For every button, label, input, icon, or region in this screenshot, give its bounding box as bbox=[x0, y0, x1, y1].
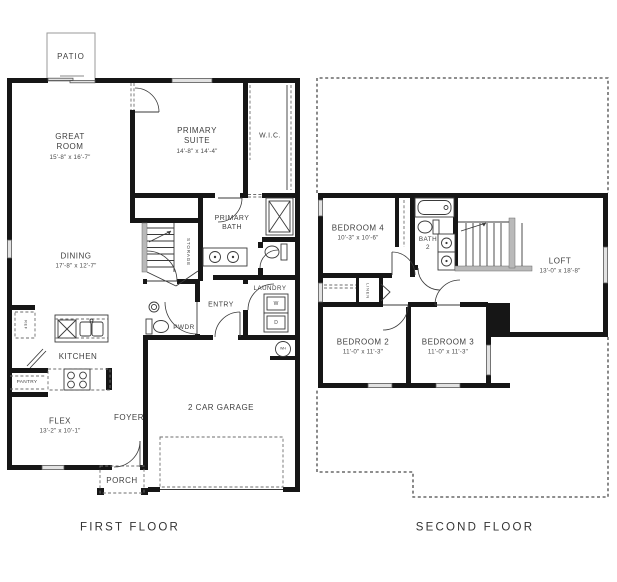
floor-plan-drawing bbox=[0, 0, 617, 582]
kitchen-island bbox=[55, 315, 108, 342]
first-floor-caption: FIRST FLOOR bbox=[80, 521, 180, 536]
bath2-name: BATH bbox=[419, 236, 437, 244]
bedroom3-dims: 11'-0" x 11'-3" bbox=[422, 349, 475, 357]
bedroom4-name: BEDROOM 4 bbox=[332, 223, 385, 233]
dining-name: DINING bbox=[55, 251, 96, 261]
bath2-vanity bbox=[438, 234, 455, 270]
bedroom2-closet-rod bbox=[324, 285, 356, 288]
loft-name: LOFT bbox=[539, 256, 580, 266]
bedroom4-dims: 10'-3" x 10'-6" bbox=[332, 235, 385, 243]
primary-bath-label: PRIMARY BATH bbox=[209, 215, 255, 233]
bath2-toilet bbox=[418, 220, 439, 234]
bedroom4-label: BEDROOM 4 10'-3" x 10'-6" bbox=[332, 223, 385, 242]
foyer-label: FOYER bbox=[114, 413, 144, 423]
loft-label: LOFT 13'-0" x 18'-8" bbox=[539, 256, 580, 275]
bedroom3-name: BEDROOM 3 bbox=[422, 337, 475, 347]
kitchen-corner-wall bbox=[27, 349, 46, 368]
primary-suite-label: PRIMARY SUITE 14'-8" x 14'-4" bbox=[168, 126, 226, 156]
great-room-label: GREAT ROOM 15'-8" x 16'-7" bbox=[41, 132, 99, 162]
wic-label: W.I.C. bbox=[259, 133, 281, 142]
second-floor-caption: SECOND FLOOR bbox=[416, 521, 534, 536]
pwdr-label: PWDR bbox=[173, 324, 195, 332]
great-room-name: GREAT ROOM bbox=[41, 132, 99, 153]
washer-label: W bbox=[274, 300, 279, 307]
porch-label: PORCH bbox=[106, 476, 137, 486]
stove bbox=[64, 369, 90, 390]
bedroom2-label: BEDROOM 2 11'-0" x 11'-3" bbox=[337, 337, 390, 356]
floor-plan-canvas: PATIO GREAT ROOM 15'-8" x 16'-7" PRIMARY… bbox=[0, 0, 617, 582]
dryer-label: D bbox=[274, 319, 278, 326]
great-room-dims: 15'-8" x 16'-7" bbox=[41, 154, 99, 162]
bathtub bbox=[415, 198, 454, 217]
loft-dims: 13'-0" x 18'-8" bbox=[539, 268, 580, 276]
dining-dims: 17'-8" x 12'-7" bbox=[55, 263, 96, 271]
kitchen-label: KITCHEN bbox=[59, 352, 98, 362]
stairs-second-floor bbox=[455, 218, 532, 271]
patio-label: PATIO bbox=[57, 52, 85, 62]
primary-suite-name: PRIMARY SUITE bbox=[168, 126, 226, 147]
second-floor-plan bbox=[317, 78, 608, 497]
primary-suite-dims: 14'-8" x 14'-4" bbox=[168, 148, 226, 156]
garage-door bbox=[160, 437, 283, 490]
pantry-label: PANTRY bbox=[17, 380, 38, 386]
water-heater-label: WH bbox=[280, 347, 286, 352]
bedroom3-label: BEDROOM 3 11'-0" x 11'-3" bbox=[422, 337, 475, 356]
primary-bath-toilet bbox=[265, 244, 287, 260]
shower bbox=[266, 198, 293, 235]
powder-toilet bbox=[146, 319, 169, 334]
flex-dims: 13'-2" x 10'-1" bbox=[39, 428, 80, 436]
bedroom2-name: BEDROOM 2 bbox=[337, 337, 390, 347]
primary-bath-vanity bbox=[203, 248, 247, 266]
ref-label: REF bbox=[23, 320, 28, 330]
bath2-label: BATH 2 bbox=[419, 236, 437, 252]
garage-label: 2 CAR GARAGE bbox=[188, 403, 254, 413]
bath2-number: 2 bbox=[419, 244, 437, 252]
storage-label: STORAGE bbox=[185, 238, 191, 266]
entry-label: ENTRY bbox=[208, 302, 234, 311]
dining-label: DINING 17'-8" x 12'-7" bbox=[55, 251, 96, 270]
laundry-label: LAUNDRY bbox=[254, 285, 287, 293]
flex-label: FLEX 13'-2" x 10'-1" bbox=[39, 416, 80, 435]
flex-name: FLEX bbox=[39, 416, 80, 426]
bedroom2-dims: 11'-0" x 11'-3" bbox=[337, 349, 390, 357]
roof-outline-dashed bbox=[317, 78, 608, 497]
linen-label: LINEN bbox=[365, 283, 370, 299]
cased-opening-dashed bbox=[131, 83, 134, 110]
powder-sink bbox=[149, 302, 159, 312]
